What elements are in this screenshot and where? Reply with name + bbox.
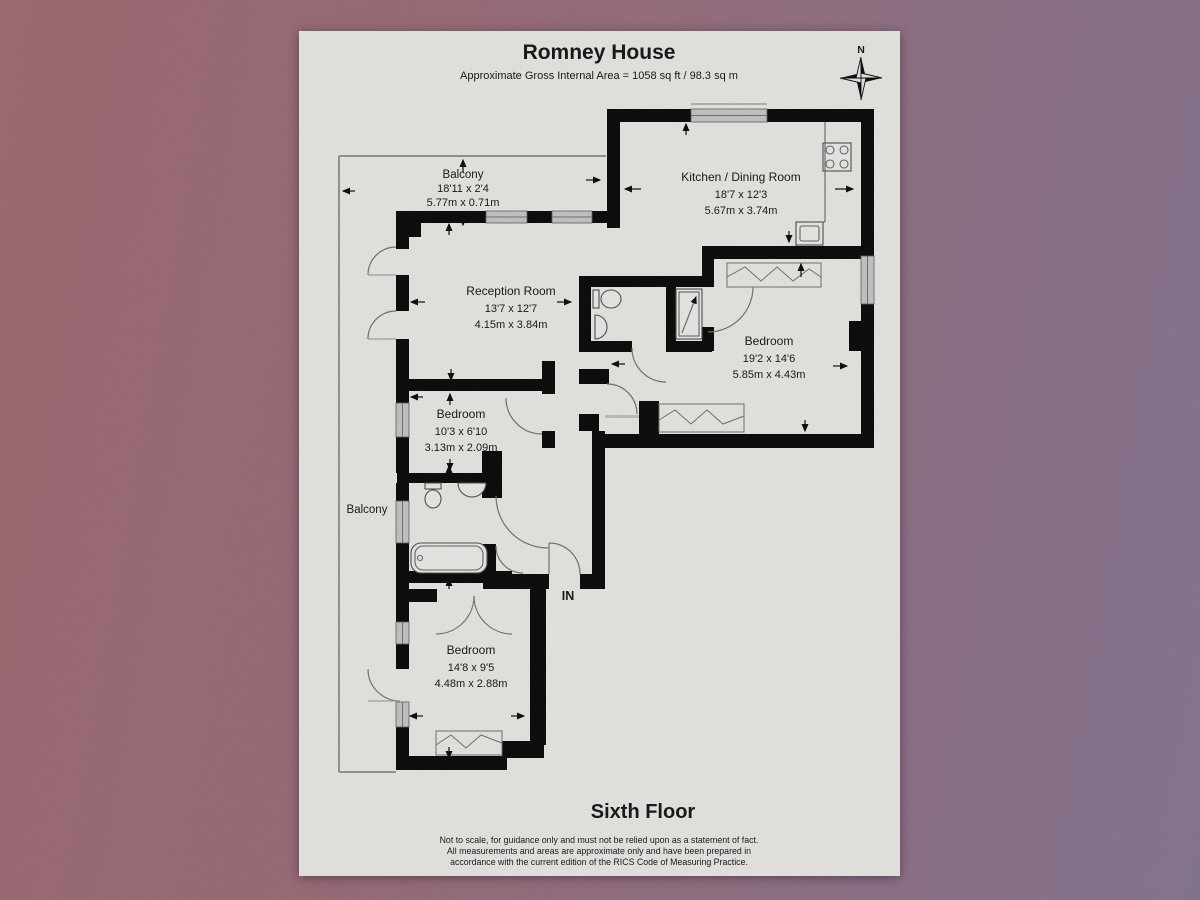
room-label-reception: Reception Room 13'7 x 12'7 4.15m x 3.84m xyxy=(466,284,555,331)
shower-cubicle xyxy=(676,289,702,339)
bathtub xyxy=(411,543,487,573)
room-label-bedroom-bottom: Bedroom 14'8 x 9'5 4.48m x 2.88m xyxy=(435,643,508,690)
entrance-label: IN xyxy=(562,589,575,603)
wc-toilet xyxy=(593,290,621,308)
room-metric: 3.13m x 2.09m xyxy=(425,442,498,454)
room-label-bedroom-small: Bedroom 10'3 x 6'10 3.13m x 2.09m xyxy=(425,407,498,454)
room-metric: 4.15m x 3.84m xyxy=(475,319,548,331)
wc-basin xyxy=(595,315,607,339)
compass-north-label: N xyxy=(857,44,865,56)
room-metric: 5.85m x 4.43m xyxy=(733,369,806,381)
bath-toilet xyxy=(425,483,441,508)
room-name: Bedroom xyxy=(447,643,496,657)
room-name: Balcony xyxy=(443,169,484,181)
room-label-kitchen: Kitchen / Dining Room 18'7 x 12'3 5.67m … xyxy=(681,170,800,217)
floorplan: Romney House Approximate Gross Internal … xyxy=(299,31,900,876)
page-subtitle: Approximate Gross Internal Area = 1058 s… xyxy=(460,70,738,82)
room-name: Bedroom xyxy=(437,407,486,421)
room-name: Reception Room xyxy=(466,284,555,298)
room-label-bedroom-east: Bedroom 19'2 x 14'6 5.85m x 4.43m xyxy=(733,334,806,381)
room-label-balcony-top: Balcony 18'11 x 2'4 5.77m x 0.71m xyxy=(427,169,500,209)
page-title: Romney House xyxy=(523,41,676,64)
compass-star-icon xyxy=(840,57,882,100)
room-metric: 4.48m x 2.88m xyxy=(435,678,508,690)
background: Romney House Approximate Gross Internal … xyxy=(0,0,1200,900)
room-name: Bedroom xyxy=(745,334,794,348)
floorplan-sheet: Romney House Approximate Gross Internal … xyxy=(299,31,900,876)
floor-title: Sixth Floor xyxy=(591,801,696,823)
room-imperial: 19'2 x 14'6 xyxy=(743,353,796,365)
room-metric: 5.77m x 0.71m xyxy=(427,197,500,209)
room-imperial: 13'7 x 12'7 xyxy=(485,303,538,315)
disclaimer-line: All measurements and areas are approxima… xyxy=(447,846,751,856)
north-compass: N xyxy=(840,44,882,100)
room-imperial: 14'8 x 9'5 xyxy=(448,662,494,674)
room-metric: 5.67m x 3.74m xyxy=(705,205,778,217)
room-imperial: 10'3 x 6'10 xyxy=(435,426,488,438)
room-label-balcony-left: Balcony xyxy=(347,504,388,516)
bath-basin xyxy=(458,483,486,497)
room-imperial: 18'7 x 12'3 xyxy=(715,189,768,201)
room-imperial: 18'11 x 2'4 xyxy=(437,183,489,195)
kitchen-sink xyxy=(796,222,823,245)
hob xyxy=(823,143,851,171)
disclaimer-line: accordance with the current edition of t… xyxy=(450,857,748,867)
disclaimer-line: Not to scale, for guidance only and must… xyxy=(440,835,759,845)
room-name: Kitchen / Dining Room xyxy=(681,170,800,184)
